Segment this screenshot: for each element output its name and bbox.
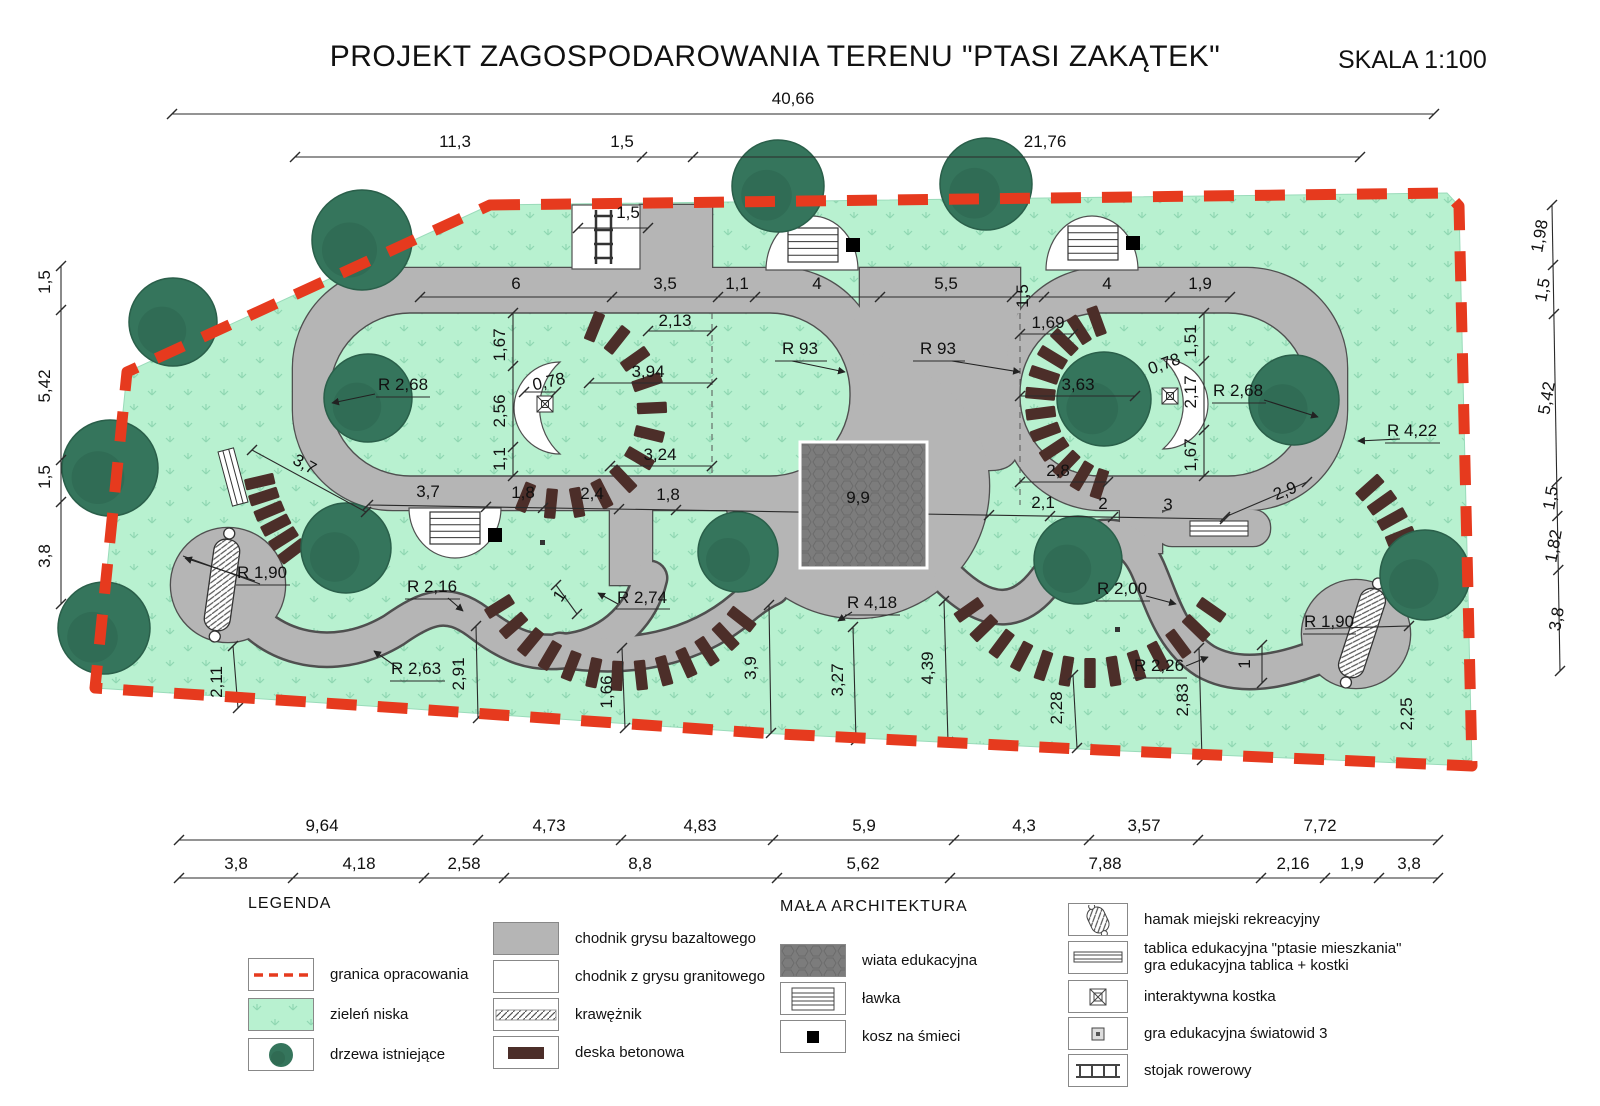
dimension-label: 1,66 xyxy=(597,675,616,708)
dimension-label: 1,67 xyxy=(1181,438,1200,471)
dimension-label: 2,13 xyxy=(658,311,691,330)
dimension-label: 1,5 xyxy=(610,132,634,151)
legend-item-education-board: tablica edukacyjna "ptasie mieszkania" g… xyxy=(1068,940,1401,974)
legend-label: interaktywna kostka xyxy=(1144,988,1276,1005)
dimension-label: 1,82 xyxy=(1541,528,1565,564)
dimension-label: 6 xyxy=(511,274,520,293)
plank-icon xyxy=(506,1045,546,1061)
legend-label: ławka xyxy=(862,990,900,1007)
concrete-plank xyxy=(1084,658,1095,688)
legend-item-curb: krawężnik xyxy=(493,998,642,1031)
legend-label: chodnik grysu bazaltowego xyxy=(575,930,756,947)
concrete-plank xyxy=(637,402,667,415)
dimension-label: 2,91 xyxy=(449,657,468,690)
legend-label: kosz na śmieci xyxy=(862,1028,960,1045)
game-marker xyxy=(1115,627,1120,632)
legend-item-hammock: hamak miejski rekreacyjny xyxy=(1068,903,1320,936)
legend-label: drzewa istniejące xyxy=(330,1046,445,1063)
site-plan-sheet: PROJEKT ZAGOSPODAROWANIA TERENU "PTASI Z… xyxy=(0,0,1600,1106)
dimension-label: 2,4 xyxy=(580,484,604,503)
legend-label: chodnik z grysu granitowego xyxy=(575,968,765,985)
dimension-label: 3 xyxy=(1163,495,1172,514)
dimension-label: 2,8 xyxy=(1046,461,1070,480)
dimension-label: 2,11 xyxy=(207,666,226,698)
dimension-label: 3,8 xyxy=(224,854,248,873)
bench xyxy=(1068,226,1118,260)
dimension-label: 3,57 xyxy=(1127,816,1160,835)
dimension-label: 1,5 xyxy=(1531,277,1554,304)
shelter-icon xyxy=(781,945,845,976)
dimension-label: 2,17 xyxy=(1181,375,1200,408)
dimension-label: 4 xyxy=(812,274,821,293)
legend-item-trees: drzewa istniejące xyxy=(248,1038,445,1071)
trash-bin xyxy=(1126,236,1140,250)
dimension-label: R 2,68 xyxy=(378,375,428,394)
interactive-cube xyxy=(537,396,553,412)
dimension-label: R 2,63 xyxy=(391,659,441,678)
dimension-label: R 2,74 xyxy=(617,588,667,607)
tree xyxy=(698,512,778,592)
curb-icon xyxy=(495,1006,557,1024)
bike-rack-icon xyxy=(1074,1061,1122,1081)
legend-label: tablica edukacyjna "ptasie mieszkania" g… xyxy=(1144,940,1401,974)
legend-title: LEGENDA xyxy=(248,895,331,913)
dimension-label: 3,8 xyxy=(1397,854,1421,873)
legend-item-bin: kosz na śmieci xyxy=(780,1020,960,1053)
dimension-label: R 4,18 xyxy=(847,593,897,612)
legend-label: deska betonowa xyxy=(575,1044,684,1061)
dimension-label: 1,98 xyxy=(1527,218,1551,254)
dimension-label: 2,16 xyxy=(1276,854,1309,873)
dimension-label: R 93 xyxy=(782,339,818,358)
dimension-label: R 1,90 xyxy=(1304,612,1354,631)
education-board xyxy=(1190,521,1248,536)
dimension-label: 3,7 xyxy=(416,482,440,501)
trash-bin xyxy=(488,528,502,542)
dimension-label: R 4,22 xyxy=(1387,421,1437,440)
dimension-label: 7,72 xyxy=(1303,816,1336,835)
low-green-icon xyxy=(249,999,313,1030)
legend-label: krawężnik xyxy=(575,1006,642,1023)
basalt-swatch xyxy=(493,922,559,955)
dimension-label: 2,56 xyxy=(490,394,509,427)
legend-item-low-green: zieleń niska xyxy=(248,998,408,1031)
dimension-label: 5,42 xyxy=(35,369,54,402)
dimension-label: 3,94 xyxy=(631,362,664,381)
dimension-label: 2,28 xyxy=(1047,691,1066,724)
dimension-label: 3,63 xyxy=(1061,375,1094,394)
dimension-label: 2,1 xyxy=(1031,493,1055,512)
dimension-label: 4,3 xyxy=(1012,816,1036,835)
dimension-label: 1,5 xyxy=(616,203,640,222)
dimension-label: 1,1 xyxy=(725,274,749,293)
legend-item-boundary: granica opracowania xyxy=(248,958,468,991)
dimension-label: 9,9 xyxy=(846,488,870,507)
dimension-label: 3,8 xyxy=(1545,606,1568,633)
game-swiatowid-icon xyxy=(1091,1027,1105,1041)
dimension-label: 21,76 xyxy=(1024,132,1067,151)
dimension-label: 1,8 xyxy=(656,485,680,504)
legend-label: wiata edukacyjna xyxy=(862,952,977,969)
dimension-label: 3,27 xyxy=(828,663,847,696)
bench xyxy=(430,512,480,544)
dimension-label: 1,8 xyxy=(511,483,535,502)
dimension-label: 4 xyxy=(1102,274,1111,293)
legend-item-interactive-cube: interaktywna kostka xyxy=(1068,980,1276,1013)
dimension-label: 1,9 xyxy=(1188,274,1212,293)
dimension-label: 4,83 xyxy=(683,816,716,835)
dimension-label: R 2,26 xyxy=(1134,656,1184,675)
dimension-label: 7,88 xyxy=(1088,854,1121,873)
tree xyxy=(1249,355,1339,445)
tree xyxy=(312,190,412,290)
legend-item-shelter: wiata edukacyjna xyxy=(780,944,977,977)
dimension-label: 2,58 xyxy=(447,854,480,873)
dimension-label: R 2,68 xyxy=(1213,381,1263,400)
dimension-label: 1,69 xyxy=(1031,313,1064,332)
legend-item-game-swiatowid: gra edukacyjna światowid 3 xyxy=(1068,1017,1327,1050)
dimension-label: 5,62 xyxy=(846,854,879,873)
small-architecture-title: MAŁA ARCHITEKTURA xyxy=(780,898,968,916)
dimension-label: 2 xyxy=(1098,494,1107,513)
bench-icon xyxy=(790,986,836,1012)
dimension-label: 8,8 xyxy=(628,854,652,873)
legend-label: stojak rowerowy xyxy=(1144,1062,1252,1079)
legend-item-bench: ławka xyxy=(780,982,900,1015)
dimension-label: 1,9 xyxy=(1340,854,1364,873)
dimension-label: 11,3 xyxy=(439,132,471,151)
dimension-label: R 1,90 xyxy=(237,563,287,582)
legend-item-concrete-plank: deska betonowa xyxy=(493,1036,684,1069)
dimension-label: 1,5 xyxy=(35,270,54,294)
game-marker xyxy=(540,540,545,545)
dimension-label: 3,8 xyxy=(35,544,54,568)
dimension-label: 5,9 xyxy=(852,816,876,835)
dimension-label: 9,64 xyxy=(305,816,338,835)
education-board-icon xyxy=(1072,948,1124,966)
interactive-cube-icon xyxy=(1088,987,1108,1007)
tree xyxy=(1380,530,1470,620)
boundary-dash-icon xyxy=(251,965,311,985)
granite-swatch xyxy=(493,960,559,993)
dimension-label: 1,5 xyxy=(1013,284,1032,308)
dimension-label: 4,73 xyxy=(532,816,565,835)
dimension-label: 4,39 xyxy=(918,651,937,684)
dimension-label: R 93 xyxy=(920,339,956,358)
tree xyxy=(324,354,412,442)
dimension-label: 40,66 xyxy=(772,89,815,108)
legend-label: hamak miejski rekreacyjny xyxy=(1144,911,1320,928)
legend-item-basalt-path: chodnik grysu bazaltowego xyxy=(493,922,756,955)
tree-icon xyxy=(266,1041,296,1069)
tree xyxy=(940,138,1032,230)
dimension-label: R 2,16 xyxy=(407,577,457,596)
dimension-label: 1 xyxy=(1235,659,1254,668)
dimension-label: 5,5 xyxy=(934,274,958,293)
legend-label: zieleń niska xyxy=(330,1006,408,1023)
tree xyxy=(1057,352,1151,446)
dimension-label: 3,24 xyxy=(643,445,676,464)
dimension-label: 1,5 xyxy=(35,465,54,489)
dimension-label: 3,9 xyxy=(741,656,760,680)
dimension-label: 1,67 xyxy=(490,328,509,361)
dimension-label: 2,25 xyxy=(1397,697,1416,730)
dimension-label: 1,51 xyxy=(1181,324,1200,357)
dimension-label: 1,1 xyxy=(490,447,509,471)
trash-bin xyxy=(846,238,860,252)
tree xyxy=(301,503,391,593)
bench xyxy=(788,228,838,262)
dimension-label: 2,83 xyxy=(1173,683,1192,716)
dimension-label: 1,5 xyxy=(1539,485,1562,512)
bin-icon xyxy=(805,1029,821,1045)
tree xyxy=(732,140,824,232)
legend-label: gra edukacyjna światowid 3 xyxy=(1144,1025,1327,1042)
legend-label: granica opracowania xyxy=(330,966,468,983)
hammock-icon xyxy=(1070,905,1126,935)
dimension-label: 4,18 xyxy=(342,854,375,873)
dimension-label: R 2,00 xyxy=(1097,579,1147,598)
interactive-cube xyxy=(1162,388,1178,404)
legend-item-bike-rack: stojak rowerowy xyxy=(1068,1054,1252,1087)
tree xyxy=(62,420,158,516)
dimension-label: 3,5 xyxy=(653,274,677,293)
legend-item-granite-path: chodnik z grysu granitowego xyxy=(493,960,765,993)
